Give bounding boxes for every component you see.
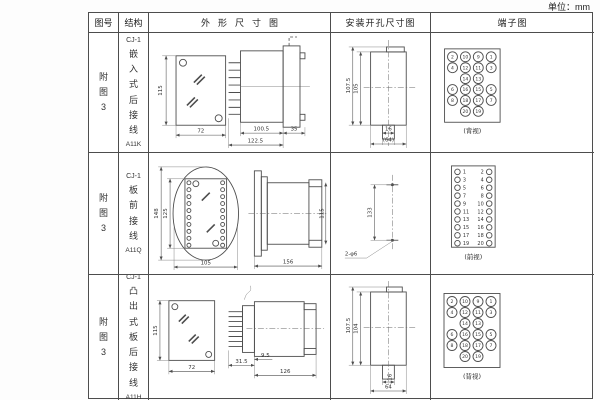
terminal-number: 7 — [490, 343, 493, 349]
hole-callout: 2-φ6 — [345, 252, 358, 258]
dim-label: 105 — [201, 261, 211, 267]
mounting-cell-a11k: 107.5 105 16 (64) — [331, 33, 431, 153]
terminal-number: 20 — [462, 109, 468, 115]
fig-no: 附图3 — [99, 70, 108, 116]
structure-cell-a11q: CJ-1 板前接线 A11Q — [119, 153, 149, 275]
terminal-number: 18 — [462, 343, 468, 349]
terminal-number: 18 — [462, 98, 468, 104]
outline-cell-a11k: 115 72 100.5 35 — [149, 33, 331, 153]
model-name: CJ-1 — [126, 37, 141, 44]
terminal-number: 11 — [463, 209, 469, 215]
terminal-number: 1 — [463, 170, 466, 176]
dim-label: 156 — [283, 260, 294, 266]
terminal-number: 7 — [463, 193, 466, 199]
view-label: (背视) — [463, 126, 481, 135]
terminal-cell-a11k: 2 10 9 1 4 12 11 3 14 13 6 16 15 5 8 18 … — [431, 33, 594, 153]
terminal-number: 3 — [463, 178, 466, 184]
document-page: 单位：mm 图号 结构 外形尺寸图 安装开孔尺寸图 端子图 附图3 CJ-1 嵌… — [0, 0, 600, 400]
terminal-number: 14 — [462, 76, 468, 82]
terminal-number: 3 — [490, 65, 493, 71]
dim-label: 107.5 — [346, 318, 352, 334]
dim-label: 104 — [354, 323, 360, 334]
model-name: CJ-1 — [126, 275, 141, 281]
terminal-number: 5 — [463, 185, 466, 191]
terminal-number: 9 — [477, 299, 480, 305]
view-label: (背视) — [463, 372, 481, 381]
terminal-number: 16 — [462, 87, 468, 93]
terminal-number: 4 — [451, 65, 454, 71]
dim-label: 35 — [291, 127, 298, 133]
fig-no-cell: 附图3 — [89, 275, 119, 400]
mounting-drawing-a11q: 133 2-φ6 — [331, 153, 430, 274]
structure-cell-a11k: CJ-1 嵌入式后接线 A11K — [119, 33, 149, 153]
terminal-number: 5 — [490, 87, 493, 93]
structure-desc: 板前接线 — [129, 183, 138, 244]
dim-label: 105 — [354, 83, 360, 93]
terminal-number: 4 — [481, 178, 484, 184]
dim-label: 133 — [368, 207, 374, 218]
terminal-number: 7 — [490, 98, 493, 104]
dim-label: 16 — [387, 373, 393, 380]
fig-no: 附图3 — [99, 191, 108, 237]
terminal-number: 2 — [451, 54, 454, 60]
terminal-number: 15 — [475, 87, 481, 93]
terminal-number: 15 — [475, 332, 481, 338]
terminal-number: 13 — [475, 321, 481, 327]
terminal-number: 1 — [490, 299, 493, 305]
terminal-number: 4 — [451, 310, 454, 316]
terminal-number: 11 — [475, 310, 481, 316]
terminal-drawing-a11q: 1 2 3 4 5 6 7 8 9 10 11 12 13 14 — [431, 153, 594, 274]
outline-drawing-a11q: 148 125 105 156 — [149, 153, 330, 274]
terminal-number: 12 — [462, 310, 468, 316]
structure-desc: 嵌入式后接线 — [129, 47, 138, 139]
terminal-number: 8 — [451, 98, 454, 104]
dim-label: 9.5 — [261, 353, 270, 359]
dim-label: 100.5 — [254, 127, 270, 133]
terminal-number: 12 — [462, 65, 468, 71]
terminal-number: 13 — [463, 217, 469, 223]
terminal-number: 2 — [451, 299, 454, 305]
col-header-terminal: 端子图 — [431, 13, 594, 33]
terminal-drawing-a11h: 2 10 9 1 4 12 11 3 14 13 6 16 15 5 8 18 … — [431, 275, 594, 400]
fig-no-cell: 附图3 — [89, 33, 119, 153]
fig-no-cell: 附图3 — [89, 153, 119, 275]
terminal-number: 19 — [463, 241, 469, 247]
terminal-number: 9 — [477, 54, 480, 60]
dim-label: 115 — [158, 85, 164, 95]
outline-cell-a11h: 115 72 31.5 9.5 — [149, 275, 331, 400]
model-code: A11K — [126, 141, 141, 148]
mounting-drawing-a11k: 107.5 105 16 (64) — [331, 33, 430, 152]
structure-cell-a11h: CJ-1 凸出式板后接线 A11H — [119, 275, 149, 400]
terminal-drawing-a11k: 2 10 9 1 4 12 11 3 14 13 6 16 15 5 8 18 … — [431, 33, 594, 152]
spec-table: 图号 结构 外形尺寸图 安装开孔尺寸图 端子图 附图3 CJ-1 嵌入式后接线 … — [88, 12, 593, 399]
dim-label: 115 — [153, 325, 159, 335]
terminal-number: 8 — [481, 193, 484, 199]
model-code: A11Q — [125, 247, 141, 254]
terminal-cell-a11q: 1 2 3 4 5 6 7 8 9 10 11 12 13 14 — [431, 153, 594, 275]
terminal-number: 6 — [481, 185, 484, 191]
dim-label: 148 — [154, 208, 160, 219]
terminal-number: 5 — [490, 332, 493, 338]
dim-label: 126 — [280, 369, 291, 375]
terminal-cell-a11h: 2 10 9 1 4 12 11 3 14 13 6 16 15 5 8 18 … — [431, 275, 594, 400]
mounting-cell-a11h: 107.5 104 16 64 — [331, 275, 431, 400]
col-header-fig: 图号 — [89, 13, 119, 33]
dim-label: 125 — [163, 208, 169, 218]
model-code: A11H — [126, 394, 142, 400]
dim-label: 64 — [385, 384, 392, 390]
outline-cell-a11q: 148 125 105 156 — [149, 153, 331, 275]
col-header-structure: 结构 — [119, 13, 149, 33]
dim-label: 72 — [188, 365, 195, 371]
terminal-number: 17 — [475, 343, 481, 349]
terminal-number: 13 — [475, 76, 481, 82]
terminal-number: 20 — [462, 354, 468, 360]
terminal-number: 6 — [451, 87, 454, 93]
terminal-number: 11 — [475, 65, 481, 71]
terminal-number: 3 — [490, 310, 493, 316]
dim-label: 122.5 — [248, 139, 264, 145]
model-name: CJ-1 — [126, 173, 141, 180]
terminal-number: 9 — [463, 201, 466, 207]
dim-label: 107.5 — [346, 78, 352, 94]
dim-label: (64) — [383, 138, 394, 144]
terminal-number: 14 — [462, 321, 468, 327]
terminal-number: 18 — [477, 233, 483, 239]
terminal-number: 10 — [477, 201, 483, 207]
terminal-number: 17 — [463, 233, 469, 239]
terminal-number: 14 — [477, 217, 483, 223]
dim-label: 72 — [197, 129, 204, 135]
terminal-number: 19 — [475, 354, 481, 360]
mounting-cell-a11q: 133 2-φ6 — [331, 153, 431, 275]
dim-label: 31.5 — [235, 359, 247, 365]
terminal-number: 1 — [490, 54, 493, 60]
terminal-number: 8 — [451, 343, 454, 349]
structure-desc: 凸出式板后接线 — [129, 284, 138, 391]
terminal-number: 19 — [475, 109, 481, 115]
dim-label: 115 — [319, 208, 325, 218]
terminal-number: 16 — [462, 332, 468, 338]
dim-label: 16 — [385, 127, 392, 133]
mounting-drawing-a11h: 107.5 104 16 64 — [331, 275, 430, 400]
view-label: (前视) — [464, 252, 482, 261]
outline-drawing-a11h: 115 72 31.5 9.5 — [149, 275, 330, 400]
terminal-number: 17 — [475, 98, 481, 104]
terminal-number: 10 — [462, 299, 468, 305]
col-header-mounting: 安装开孔尺寸图 — [331, 13, 431, 33]
terminal-number: 16 — [477, 225, 483, 231]
terminal-number: 12 — [477, 209, 483, 215]
terminal-number: 20 — [477, 241, 483, 247]
terminal-number: 15 — [463, 225, 469, 231]
col-header-outline: 外形尺寸图 — [149, 13, 331, 33]
fig-no: 附图3 — [99, 315, 108, 361]
terminal-number: 2 — [481, 170, 484, 176]
terminal-number: 10 — [462, 54, 468, 60]
terminal-number: 6 — [451, 332, 454, 338]
outline-drawing-a11k: 115 72 100.5 35 — [149, 33, 330, 152]
